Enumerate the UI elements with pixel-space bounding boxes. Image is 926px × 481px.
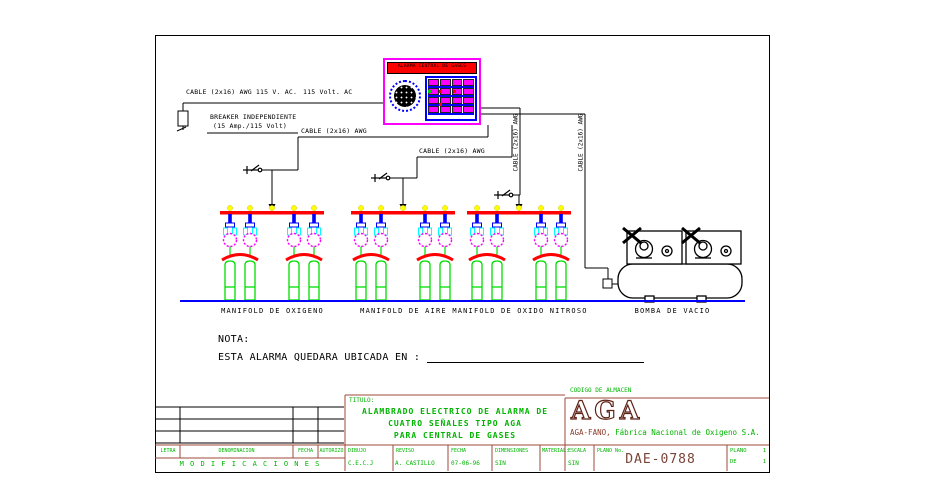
- indicator-cell: [464, 89, 473, 94]
- indicator-cell: [464, 98, 473, 103]
- red-indicator-dot: [439, 103, 442, 106]
- field-dimensiones-value: SIN: [495, 460, 506, 467]
- indicator-cell: [441, 98, 450, 103]
- drawing-title: ALAMBRADO ELECTRICO DE ALARMA DE CUATRO …: [345, 406, 565, 442]
- field-dibujo-label: DIBUJO: [348, 448, 366, 454]
- mods-col-letra: LETRA: [156, 448, 180, 454]
- volt-ac-label: 115 Volt. AC: [303, 88, 352, 96]
- aga-logo: AGA: [571, 399, 643, 423]
- green-indicator-dot: [428, 90, 431, 93]
- note-heading: NOTA:: [218, 334, 250, 345]
- field-fecha-value: 07-06-96: [451, 460, 480, 467]
- breaker-label-line2: (15 Amp./115 Volt): [213, 122, 287, 130]
- alarm-indicator-grid: [425, 76, 477, 121]
- field-dibujo-value: C.E.C.J: [348, 460, 373, 467]
- manifold-oxigeno-label: MANIFOLD DE OXIGENO: [200, 307, 345, 315]
- cable-115-label: CABLE (2x16) AWG 115 V. AC.: [186, 88, 297, 96]
- indicator-cell: [464, 107, 473, 112]
- indicator-cell: [429, 107, 438, 112]
- manifold-oxido-nitroso: [467, 205, 571, 300]
- titulo-label: TITULO:: [349, 397, 374, 404]
- alarm-panel-emblem-icon: [389, 80, 421, 112]
- codigo-almacen-label: CODIGO DE ALMACEN: [570, 387, 631, 394]
- indicator-cell: [453, 98, 462, 103]
- modifications-caption: M O D I F I C A C I O N E S: [155, 460, 345, 468]
- indicator-cell: [441, 107, 450, 112]
- cable-awg-label-vertical-2: CABLE (2x16) AWG: [578, 114, 585, 172]
- escala-label: ESCALA: [568, 448, 586, 454]
- company-name: Fábrica Nacional de Oxigeno S.A.: [615, 428, 760, 437]
- cable-awg-label-vertical-1: CABLE (2x16) AWG: [513, 114, 520, 172]
- indicator-cell: [429, 98, 438, 103]
- indicator-cell: [429, 80, 438, 85]
- sheet-row-2: DE1: [727, 459, 769, 465]
- pressure-switch-1: [243, 165, 262, 174]
- field-reviso-value: A. CASTILLO: [395, 460, 435, 467]
- indicator-row: [428, 88, 474, 97]
- cable-awg-label-1: CABLE (2x16) AWG: [301, 127, 367, 135]
- wiring-lines: [177, 103, 618, 288]
- indicator-cell: [453, 107, 462, 112]
- cable-awg-label-2: CABLE (2x16) AWG: [419, 147, 485, 155]
- alarm-panel-title: ALARMA CENTRAL DE GASES: [387, 62, 477, 74]
- field-reviso-label: REVISO: [396, 448, 414, 454]
- indicator-cell: [453, 80, 462, 85]
- cad-sheet: ALARMA CENTRAL DE GASES CABLE (2x16) AWG…: [0, 0, 926, 481]
- indicator-cell: [441, 80, 450, 85]
- sheet-row-1: PLANO1: [727, 448, 769, 454]
- indicator-cell: [464, 80, 473, 85]
- indicator-cell: [441, 89, 450, 94]
- pressure-switch-2: [371, 173, 390, 182]
- field-fecha-label: FECHA: [451, 448, 466, 454]
- indicator-row: [428, 79, 474, 88]
- note-text: ESTA ALARMA QUEDARA UBICADA EN :: [218, 352, 644, 363]
- field-material-label: MATERIAL:: [542, 448, 569, 454]
- red-indicator-dot: [439, 90, 442, 93]
- manifold-oxido-nitroso-label: MANIFOLD DE OXIDO NITROSO: [444, 307, 596, 315]
- mods-col-denominacion: DENOMINACION: [180, 448, 293, 454]
- pressure-switch-3: [494, 190, 513, 199]
- company-brand: AGA-FANO,: [570, 428, 611, 437]
- indicator-row: [428, 106, 474, 115]
- field-dimensiones-label: DIMENSIONES: [495, 448, 528, 454]
- mods-col-fecha: FECHA: [293, 448, 318, 454]
- note-blank-line: [427, 352, 644, 363]
- escala-value: SIN: [568, 460, 579, 467]
- indicator-row: [428, 97, 474, 106]
- pressure-switches: [243, 165, 523, 211]
- manifold-aire: [351, 205, 455, 300]
- breaker-label-line1: BREAKER INDEPENDIENTE: [210, 113, 296, 121]
- manifold-oxigeno: [220, 205, 324, 300]
- bomba-vacio-label: BOMBA DE VACIO: [600, 307, 745, 315]
- alarm-panel: ALARMA CENTRAL DE GASES: [383, 58, 481, 125]
- plano-no-value: DAE-0788: [594, 452, 727, 467]
- red-indicator-dot: [453, 90, 456, 93]
- company-line: AGA-FANO, Fábrica Nacional de Oxigeno S.…: [570, 428, 760, 437]
- mods-col-autorizo: AUTORIZO: [318, 448, 345, 454]
- vacuum-pump: [618, 228, 742, 302]
